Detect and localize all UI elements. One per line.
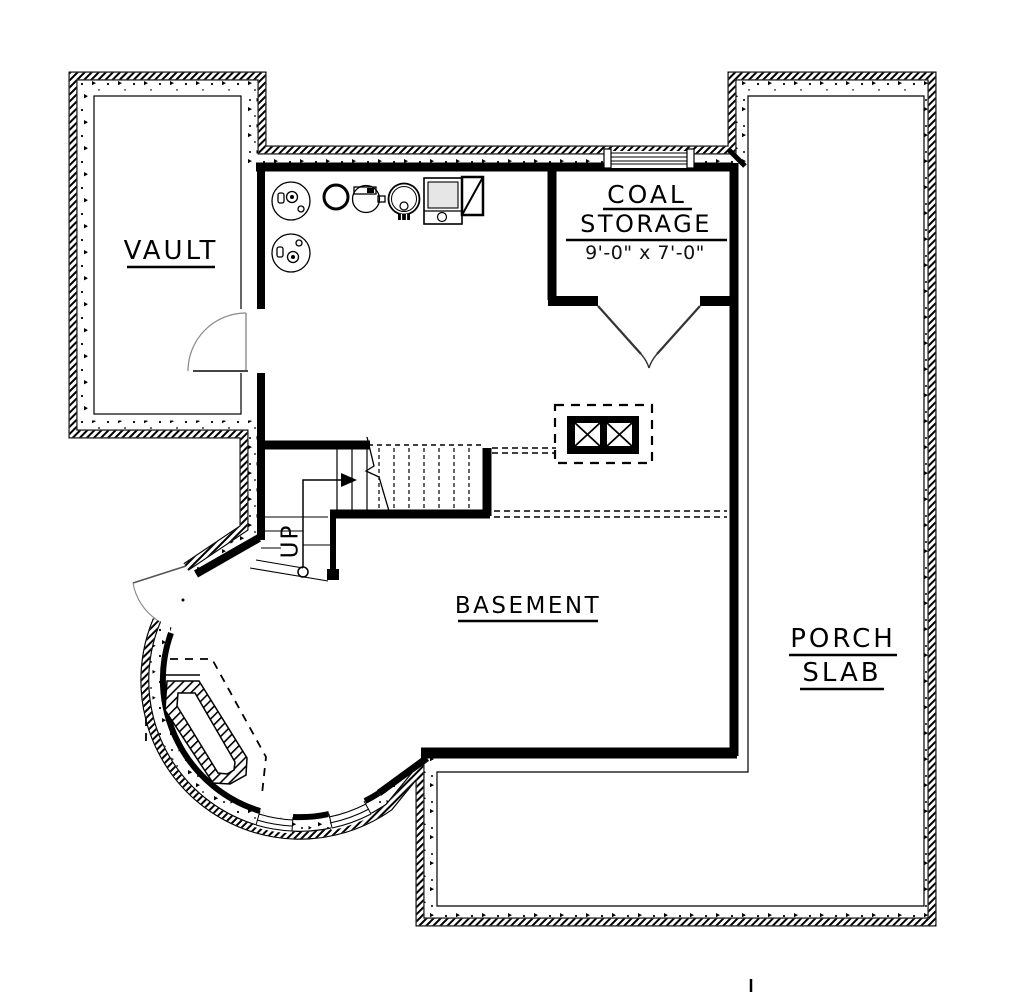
stair-treads-above xyxy=(379,448,469,512)
porch-label-line2: SLAB xyxy=(802,658,881,688)
vault-door-swing xyxy=(188,313,246,371)
furnace-symbol xyxy=(424,178,462,224)
pressure-tank-symbol xyxy=(324,185,348,209)
floor-opening-dashed xyxy=(492,448,727,517)
floor-plan-drawing: UP xyxy=(0,0,1024,992)
porch-label-line1: PORCH xyxy=(790,624,896,654)
coal-label-line1: COAL xyxy=(607,180,687,209)
newel-post-round xyxy=(298,567,308,577)
mechanical-fixtures xyxy=(272,177,483,272)
stairs-up-label: UP xyxy=(278,524,304,559)
air-plenum-symbol xyxy=(462,177,483,215)
footing-edge-band xyxy=(73,76,932,922)
turret-door xyxy=(133,566,186,620)
water-softener-symbol xyxy=(353,186,386,213)
concrete-stem-walls xyxy=(81,84,928,914)
basement-label: BASEMENT xyxy=(455,593,601,619)
coal-dimensions: 9'-0" x 7'-0" xyxy=(585,242,705,264)
floor-drain-symbol-2 xyxy=(272,234,310,272)
stair-break-line xyxy=(366,437,389,511)
floor-plan-canvas: UP xyxy=(0,0,1024,992)
coal-label-line2: STORAGE xyxy=(580,210,712,238)
floor-drain-symbol-1 xyxy=(272,182,310,220)
turret-door-swing xyxy=(133,583,157,620)
coal-double-doors xyxy=(598,306,700,368)
newel-post-square xyxy=(327,569,339,580)
water-heater-symbol xyxy=(389,184,420,221)
chimney xyxy=(555,405,652,463)
vault-label: VAULT xyxy=(124,236,219,266)
stair-direction-arrow xyxy=(341,473,357,487)
interior-edge-lines xyxy=(94,96,924,906)
vault-door xyxy=(188,309,268,373)
turret-door-leaf xyxy=(133,566,186,583)
coal-window xyxy=(604,149,694,168)
